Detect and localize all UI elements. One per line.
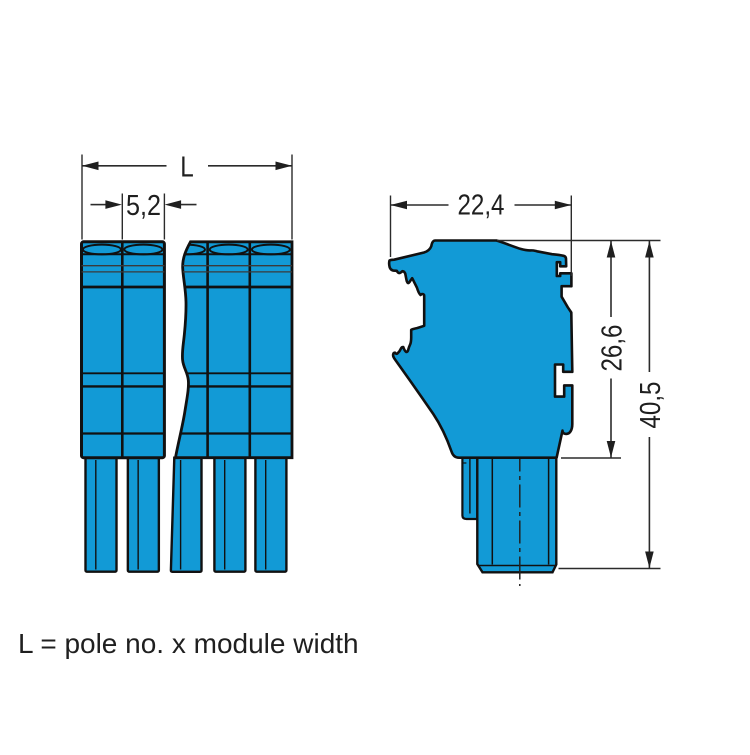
svg-text:5,2: 5,2 (126, 190, 161, 222)
svg-text:26,6: 26,6 (596, 325, 628, 372)
svg-text:L: L (180, 152, 194, 184)
svg-text:40,5: 40,5 (635, 382, 667, 429)
svg-text:22,4: 22,4 (458, 190, 505, 222)
svg-text:L = pole no. x module width: L = pole no. x module width (18, 628, 359, 659)
